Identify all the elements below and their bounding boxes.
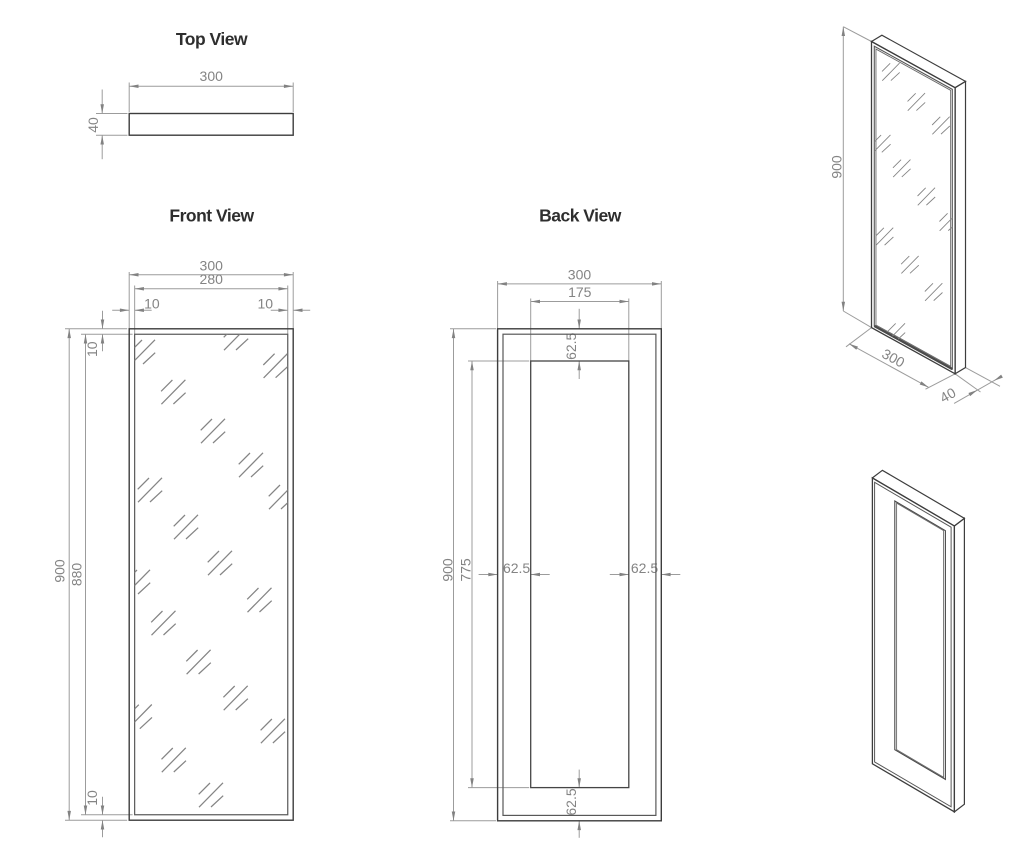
svg-text:775: 775 xyxy=(458,558,474,582)
svg-text:62.5: 62.5 xyxy=(503,560,530,576)
svg-text:900: 900 xyxy=(829,155,845,179)
svg-text:10: 10 xyxy=(84,790,100,806)
svg-text:300: 300 xyxy=(200,68,224,84)
svg-text:280: 280 xyxy=(200,271,224,287)
svg-text:880: 880 xyxy=(69,563,85,587)
svg-text:62.5: 62.5 xyxy=(563,332,579,359)
svg-text:10: 10 xyxy=(144,296,160,312)
svg-text:900: 900 xyxy=(440,558,456,582)
svg-text:175: 175 xyxy=(568,284,592,300)
svg-text:900: 900 xyxy=(52,559,68,583)
svg-text:300: 300 xyxy=(568,266,592,282)
svg-text:Top View: Top View xyxy=(176,29,248,49)
svg-text:40: 40 xyxy=(85,117,101,133)
svg-text:Back View: Back View xyxy=(539,206,622,226)
svg-text:Front View: Front View xyxy=(169,206,254,226)
svg-text:62.5: 62.5 xyxy=(563,788,579,815)
svg-text:10: 10 xyxy=(258,296,274,312)
svg-text:62.5: 62.5 xyxy=(631,560,658,576)
svg-text:10: 10 xyxy=(84,341,100,357)
